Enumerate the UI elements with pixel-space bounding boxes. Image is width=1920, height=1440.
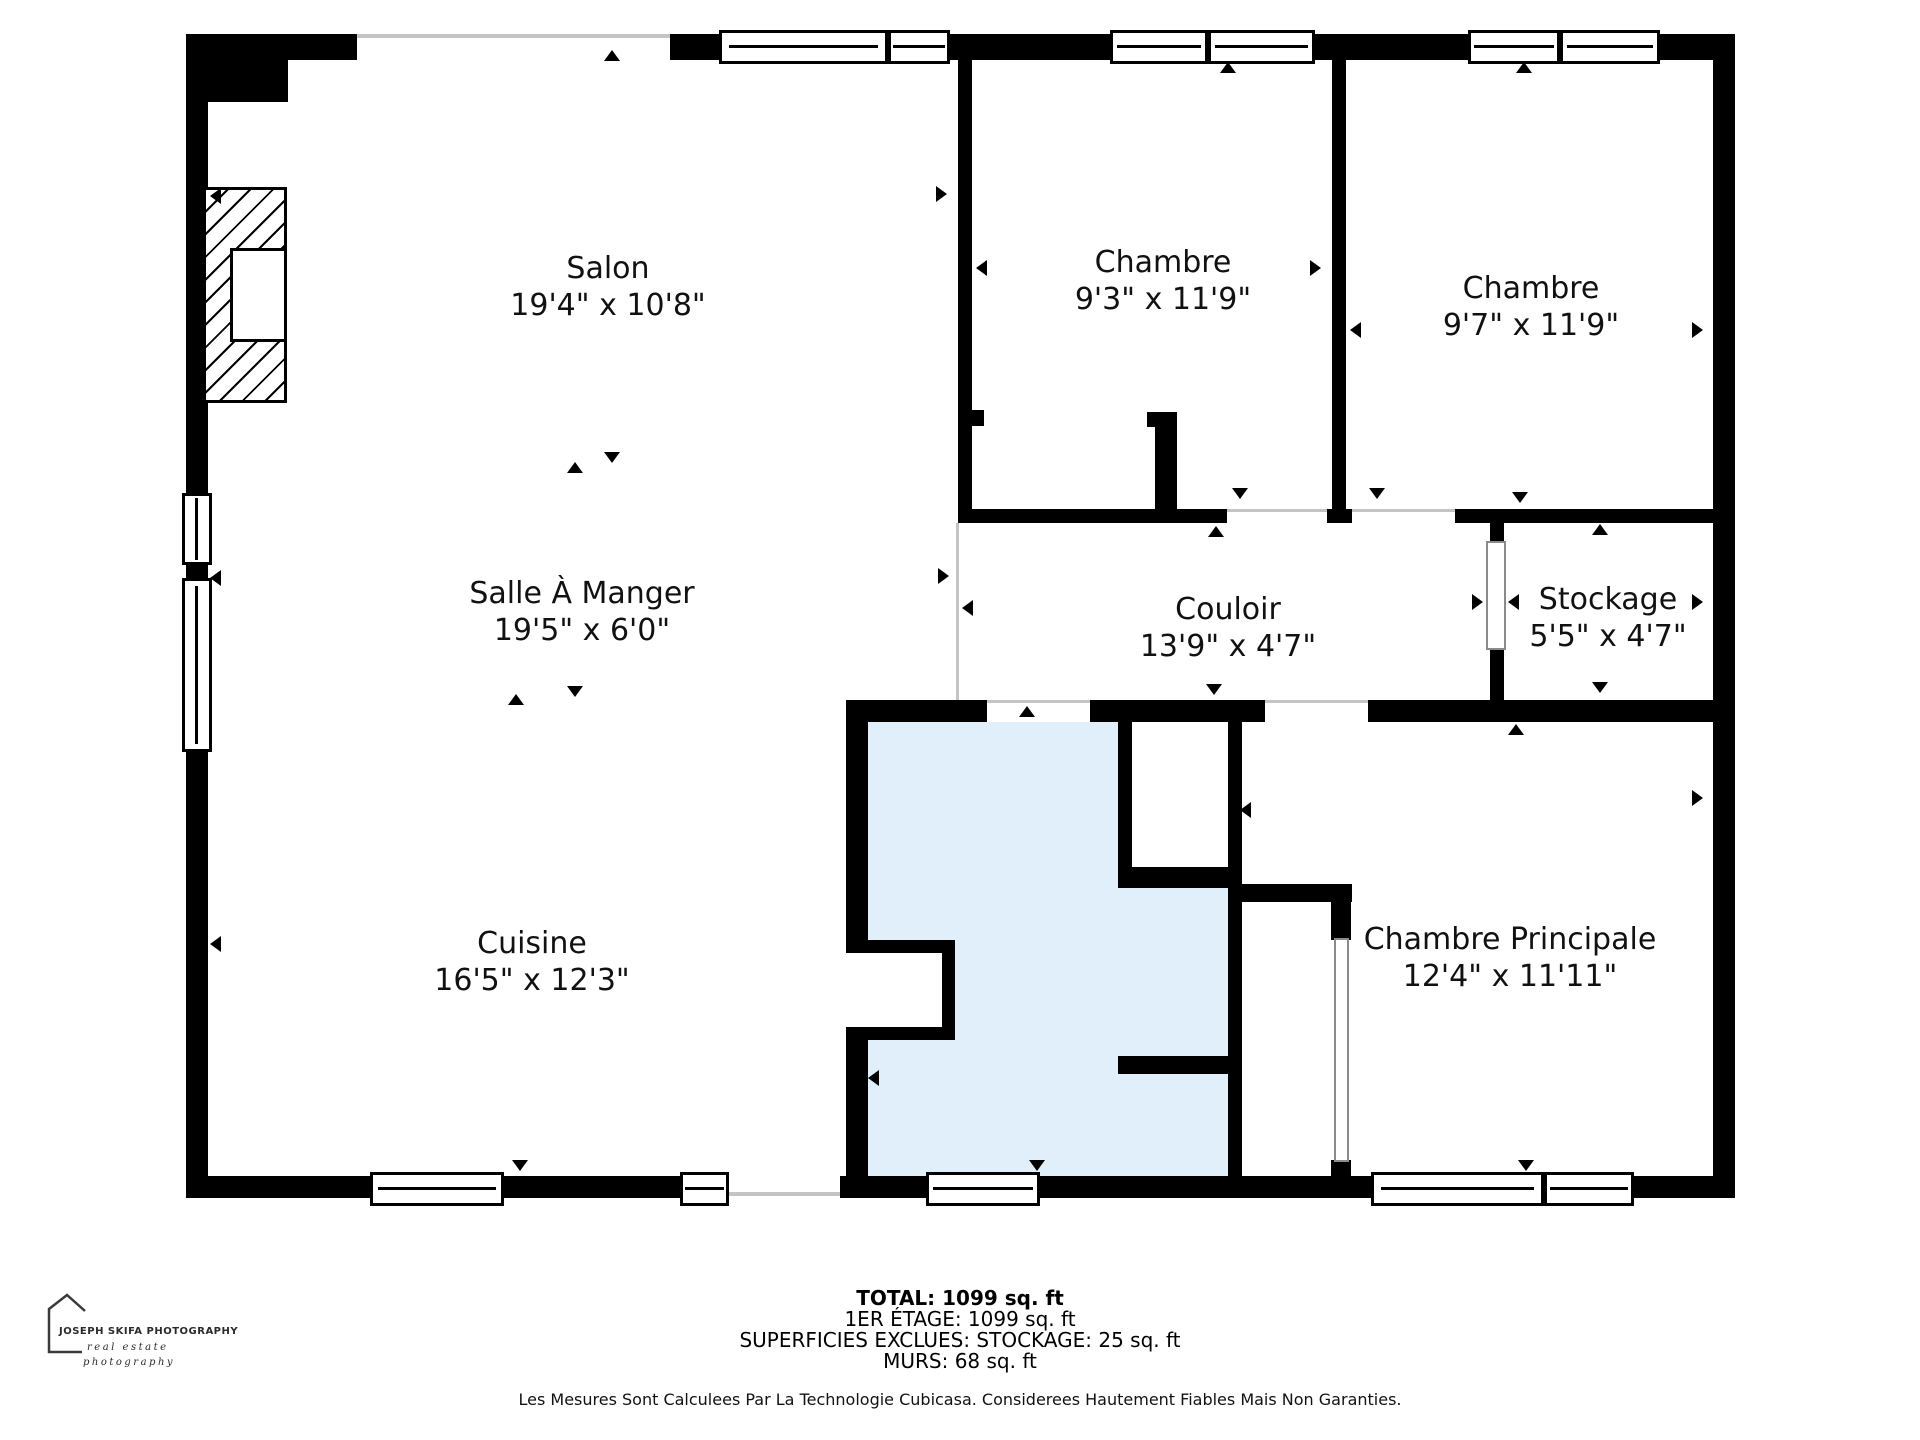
room-dims: 9'7" x 11'9" (1371, 307, 1691, 344)
nook-middle-wall (1228, 884, 1352, 902)
measure-arrow-up-0 (604, 50, 620, 61)
bottom-window-1 (370, 1172, 504, 1206)
stockage-left-wall-lower (1490, 648, 1504, 702)
shower-floor (1132, 722, 1228, 867)
niche-right-wall (942, 940, 955, 1040)
bottom-window-4 (1371, 1172, 1544, 1206)
measure-arrow-up-28 (1019, 706, 1035, 717)
chambre-divider-wall (1332, 60, 1346, 523)
closet-sliding-door (1334, 938, 1349, 1162)
measure-arrow-left-4 (210, 570, 221, 586)
top-wall-b (670, 34, 719, 60)
shower-bottom-wall (1118, 867, 1242, 888)
room-label-chambre-principale: Chambre Principale 12'4" x 11'11" (1310, 921, 1710, 995)
bottom-window-2 (680, 1172, 729, 1206)
window-pane-line (1381, 1187, 1535, 1190)
chambre1-bottom-wall (958, 509, 1227, 523)
top-opening-line (357, 34, 670, 38)
bathroom-door-line (987, 700, 1090, 703)
room-label-cuisine: Cuisine 16'5" x 12'3" (372, 925, 692, 999)
bottom-wall-a (186, 1176, 370, 1198)
bottom-wall-b (504, 1176, 680, 1198)
window-pane-line (933, 1187, 1032, 1190)
room-name: Cuisine (372, 925, 692, 962)
disclaimer-text: Les Mesures Sont Calculees Par La Techno… (0, 1390, 1920, 1409)
measure-arrow-right-14 (1692, 322, 1703, 338)
measure-arrow-down-25 (1592, 682, 1608, 693)
measure-arrow-up-16 (1208, 526, 1224, 537)
room-label-salle-a-manger: Salle À Manger 19'5" x 6'0" (402, 575, 762, 649)
measure-arrow-left-3 (210, 188, 221, 204)
couloir-bottom-wall (1090, 700, 1265, 722)
window-pane-line (729, 45, 879, 48)
left-wall-lower (186, 752, 208, 1198)
measure-arrow-up-1 (1220, 62, 1236, 73)
room-label-chambre-2: Chambre 9'7" x 11'9" (1371, 270, 1691, 344)
chambre1-door-line (1227, 509, 1327, 512)
measure-arrow-up-2 (1516, 62, 1532, 73)
logo-subtitle-2: photography (83, 1357, 175, 1368)
left-window-1 (182, 493, 212, 565)
bottom-window-3 (926, 1172, 1040, 1206)
measure-arrow-left-29 (1240, 802, 1251, 818)
top-window-5 (1468, 30, 1560, 64)
window-pane-line (893, 45, 945, 48)
right-wall (1713, 34, 1735, 1198)
room-label-salon: Salon 19'4" x 10'8" (448, 250, 768, 324)
logo-title: JOSEPH SKIFA PHOTOGRAPHY (59, 1326, 238, 1337)
measure-arrow-right-22 (1472, 594, 1483, 610)
closet-door-top-cap (1331, 902, 1351, 940)
chambre-principale-top-wall (1368, 700, 1713, 722)
top-window-4 (1208, 30, 1315, 64)
top-window-6 (1560, 30, 1660, 64)
chambre1-closet-wall (1155, 412, 1177, 523)
chambre2-door-line (1352, 509, 1455, 512)
room-dims: 13'9" x 4'7" (1068, 628, 1388, 665)
measure-arrow-down-15 (1232, 488, 1248, 499)
top-window-1 (719, 30, 888, 64)
measure-arrow-down-33 (512, 1160, 528, 1171)
measure-arrow-up-6 (567, 462, 583, 473)
measure-arrow-right-18 (938, 568, 949, 584)
room-name: Couloir (1068, 591, 1388, 628)
left-wall-window-divider (186, 565, 208, 578)
measure-arrow-left-11 (976, 260, 987, 276)
cuisine-niche-floor (846, 940, 955, 1040)
floor-plan: Salon 19'4" x 10'8" Chambre 9'3" x 11'9"… (0, 0, 1920, 1440)
measure-arrow-down-27 (1206, 684, 1222, 695)
bathroom-right-wall (1228, 722, 1242, 1176)
window-pane-line (685, 1187, 725, 1190)
niche-bottom-wall (846, 1027, 955, 1040)
room-dims: 16'5" x 12'3" (372, 962, 692, 999)
measure-arrow-down-32 (1029, 1160, 1045, 1171)
window-pane-line (195, 586, 198, 744)
window-pane-line (1550, 1187, 1627, 1190)
top-wall-d (1315, 34, 1468, 60)
room-label-chambre-1: Chambre 9'3" x 11'9" (1003, 244, 1323, 318)
bathroom-left-wall-lower (846, 1027, 868, 1176)
salon-chambre-wall (958, 60, 972, 523)
closet-door-bottom-cap (1331, 1160, 1351, 1176)
measure-arrow-left-13 (1350, 322, 1361, 338)
room-label-couloir: Couloir 13'9" x 4'7" (1068, 591, 1388, 665)
top-wall-c (950, 34, 1110, 60)
window-pane-line (1567, 45, 1654, 48)
measure-arrow-left-19 (962, 600, 973, 616)
top-window-2 (888, 30, 950, 64)
top-window-3 (1110, 30, 1208, 64)
room-dims: 19'5" x 6'0" (402, 612, 762, 649)
bathroom-top-wall (846, 700, 987, 722)
window-pane-line (1474, 45, 1553, 48)
window-pane-line (378, 1187, 496, 1190)
bottom-wall-c (840, 1176, 926, 1198)
bottom-window-5 (1544, 1172, 1634, 1206)
measure-arrow-right-12 (1310, 260, 1321, 276)
room-name: Chambre (1371, 270, 1691, 307)
logo-subtitle-1: real estate (87, 1342, 169, 1353)
room-name: Salon (448, 250, 768, 287)
chambre1-closet-jamb (972, 410, 984, 426)
room-name: Chambre Principale (1310, 921, 1710, 958)
couloir-open-boundary-line (956, 523, 959, 700)
measure-arrow-right-24 (1692, 594, 1703, 610)
fireplace-insert (230, 248, 287, 342)
window-pane-line (195, 498, 198, 560)
left-window-2 (182, 578, 212, 752)
measure-arrow-down-9 (567, 686, 583, 697)
shower-left-wall (1118, 722, 1132, 888)
room-dims: 19'4" x 10'8" (448, 287, 768, 324)
room-name: Salle À Manger (402, 575, 762, 612)
bottom-wall-d (1040, 1176, 1371, 1198)
toilet-partition-wall (1118, 1056, 1228, 1074)
measure-arrow-down-20 (1512, 492, 1528, 503)
niche-top-wall (846, 940, 955, 953)
room-dims: 12'4" x 11'11" (1310, 958, 1710, 995)
measure-arrow-left-5 (210, 936, 221, 952)
measure-arrow-left-34 (868, 1070, 879, 1086)
measure-arrow-down-7 (604, 452, 620, 463)
measure-arrow-right-10 (936, 186, 947, 202)
measure-arrow-up-8 (508, 694, 524, 705)
entry-opening-line (729, 1192, 840, 1196)
measure-arrow-left-23 (1508, 594, 1519, 610)
measure-arrow-down-31 (1518, 1160, 1534, 1171)
photographer-logo: JOSEPH SKIFA PHOTOGRAPHY real estate pho… (42, 1292, 302, 1382)
window-pane-line (1215, 45, 1308, 48)
bottom-wall-e (1634, 1176, 1735, 1198)
chambre2-bottom-wall-cap (1327, 509, 1352, 523)
measure-arrow-up-21 (1592, 524, 1608, 535)
room-name: Chambre (1003, 244, 1323, 281)
stockage-left-wall-upper (1490, 509, 1504, 543)
room-dims: 9'3" x 11'9" (1003, 281, 1323, 318)
bathroom-left-wall-upper (846, 722, 868, 953)
measure-arrow-right-30 (1692, 790, 1703, 806)
stockage-door (1486, 541, 1506, 650)
top-wall-a (288, 34, 357, 60)
chambre-principale-door-line (1265, 700, 1368, 703)
window-pane-line (1117, 45, 1202, 48)
measure-arrow-down-17 (1369, 488, 1385, 499)
measure-arrow-up-26 (1508, 724, 1524, 735)
